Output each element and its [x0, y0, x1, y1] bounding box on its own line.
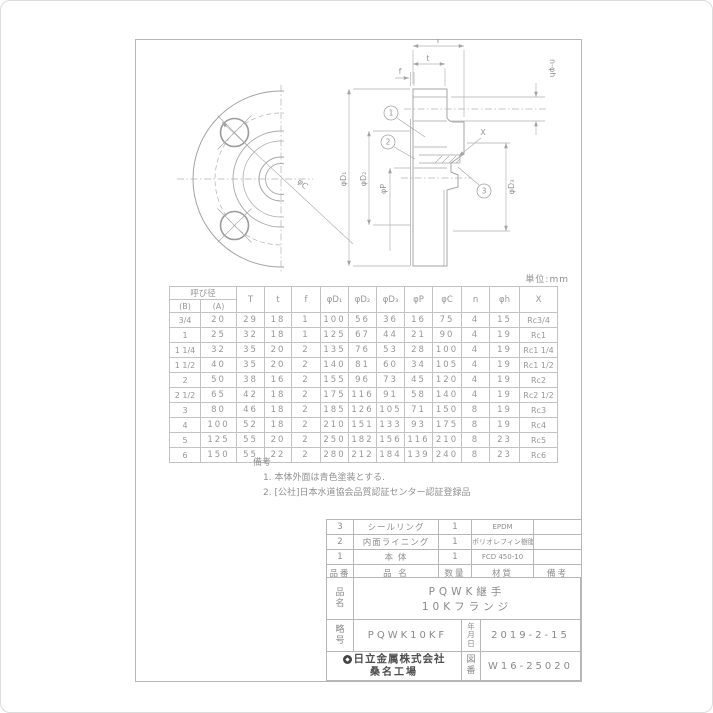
table-cell: 19 — [490, 373, 520, 388]
table-cell: 23 — [490, 433, 520, 448]
table-row: 25038162155967345120419Rc2 — [170, 373, 558, 388]
table-cell: 16 — [265, 373, 292, 388]
product-name-label-cell: 品名 — [326, 577, 354, 620]
table-cell: 3/4 — [170, 313, 201, 328]
company-cell: 日立金属株式会社 桑名工場 — [326, 651, 462, 681]
table-header-row: 呼び径 T t f φD₁ φD₂ φD₃ φP φC n φh X — [170, 287, 558, 300]
notes: 備考 1. 本体外面は青色塗装とする. 2. [公社]日本水道協会品質認証センタ… — [253, 456, 470, 501]
dim-label-t: t — [426, 54, 429, 63]
date-value-cell: 2019-2-15 — [480, 619, 581, 652]
code-label-cell: 略号 — [326, 619, 354, 652]
table-cell: 18 — [265, 388, 292, 403]
table-cell: 19 — [490, 358, 520, 373]
table-cell: 1 1/4 — [170, 343, 201, 358]
table-cell: 105 — [377, 403, 405, 418]
table-row: 1 1/43235202135765328100419Rc1 1/4 — [170, 343, 558, 358]
projection-views: φC — [135, 39, 581, 286]
table-cell: 100 — [433, 343, 462, 358]
table-cell: 2 — [292, 358, 321, 373]
table-cell: Rc3 — [520, 403, 558, 418]
table-row: 1本 体1FCD 450-10 — [327, 550, 582, 565]
table-cell: Rc1 1/4 — [520, 343, 558, 358]
balloons: 1 2 3 — [381, 106, 491, 198]
table-cell: 1 — [327, 550, 354, 565]
table-cell: 1 — [439, 520, 472, 535]
table-cell: 2 — [292, 433, 321, 448]
table-cell: 4 — [462, 358, 490, 373]
table-cell: 32 — [237, 328, 265, 343]
table-cell: 8 — [462, 433, 490, 448]
table-cell: 1 — [170, 328, 201, 343]
table-cell: 91 — [377, 388, 405, 403]
dwgno-value-cell: W16-25020 — [480, 651, 581, 681]
column-header: φD₂ — [349, 287, 377, 313]
hitachi-metals-logo-icon — [343, 655, 352, 664]
table-cell: 18 — [265, 328, 292, 343]
dim-label-f: f — [399, 67, 402, 76]
table-cell: 105 — [433, 358, 462, 373]
drawing-date: 2019-2-15 — [491, 630, 570, 641]
table-cell: 1 — [439, 535, 472, 550]
table-cell: 90 — [433, 328, 462, 343]
code-label: 略号 — [334, 625, 346, 647]
table-row: 1 1/24035202140816034105419Rc1 1/2 — [170, 358, 558, 373]
dim-label-phiD3: φD₃ — [507, 180, 516, 195]
table-cell: 3 — [327, 520, 354, 535]
table-cell: ポリオレフィン樹脂 — [472, 535, 534, 550]
table-cell: 20 — [265, 343, 292, 358]
table-cell: 40 — [201, 358, 237, 373]
table-cell: 32 — [201, 343, 237, 358]
table-cell: 19 — [490, 328, 520, 343]
table-cell: 250 — [321, 433, 349, 448]
table-cell: 18 — [265, 418, 292, 433]
table-cell: 20 — [265, 358, 292, 373]
column-header: φD₁ — [321, 287, 349, 313]
table-cell: 1 1/2 — [170, 358, 201, 373]
table-cell: 50 — [201, 373, 237, 388]
table-row: 2 1/265421821751169158140419Rc2 1/2 — [170, 388, 558, 403]
table-cell: 52 — [237, 418, 265, 433]
socket-seal-detail — [414, 147, 460, 168]
column-header: n — [462, 287, 490, 313]
table-cell: Rc5 — [520, 433, 558, 448]
table-cell: 4 — [462, 343, 490, 358]
table-cell: 151 — [349, 418, 377, 433]
table-cell: 155 — [321, 373, 349, 388]
table-cell: Rc1 — [520, 328, 558, 343]
dim-label-phiP: φP — [379, 184, 388, 194]
table-cell: 116 — [349, 388, 377, 403]
table-cell: 210 — [433, 433, 462, 448]
note-item: 2. [公社]日本水道協会品質認証センター認証登録品 — [263, 486, 470, 501]
dim-label-X: X — [480, 128, 486, 137]
table-cell — [534, 520, 582, 535]
dim-label-phiD2: φD₂ — [359, 172, 368, 187]
product-name-line1: PQWK継手 — [429, 584, 506, 599]
table-cell: Rc4 — [520, 418, 558, 433]
product-name-line2: 10Kフランジ — [422, 599, 512, 614]
column-header: φh — [490, 287, 520, 313]
table-row: 2内面ライニング1ポリオレフィン樹脂 — [327, 535, 582, 550]
table-cell: 156 — [377, 433, 405, 448]
table-cell: 18 — [265, 313, 292, 328]
notes-title: 備考 — [253, 456, 470, 471]
table-cell: 2 — [170, 373, 201, 388]
table-cell: 4 — [462, 388, 490, 403]
dim-label-phiC: φC — [296, 177, 310, 191]
table-cell: Rc2 1/2 — [520, 388, 558, 403]
table-cell: 6 — [170, 448, 201, 463]
table-cell: 125 — [201, 433, 237, 448]
table-cell: Rc3/4 — [520, 313, 558, 328]
table-cell: 38 — [237, 373, 265, 388]
table-cell: 140 — [321, 358, 349, 373]
table-cell: 28 — [405, 343, 433, 358]
table-cell: 93 — [405, 418, 433, 433]
column-header: φP — [405, 287, 433, 313]
table-cell: 53 — [377, 343, 405, 358]
table-cell: 71 — [405, 403, 433, 418]
table-cell: 4 — [462, 373, 490, 388]
table-cell: EPDM — [472, 520, 534, 535]
table-cell: 125 — [321, 328, 349, 343]
section-labels: T t f n-φh φD₁ φD₂ φP φD₃ X — [339, 39, 557, 194]
table-cell: 73 — [377, 373, 405, 388]
table-cell: 2 — [292, 418, 321, 433]
table-cell: 本 体 — [354, 550, 439, 565]
dwgno-label-cell: 図番 — [461, 651, 481, 681]
table-cell: 20 — [265, 433, 292, 448]
table-cell: 55 — [237, 433, 265, 448]
note-item: 1. 本体外面は青色塗装とする. — [263, 471, 470, 486]
table-cell: 4 — [170, 418, 201, 433]
dim-label-T: T — [435, 39, 441, 45]
table-cell: 29 — [237, 313, 265, 328]
table-cell: 60 — [377, 358, 405, 373]
column-header: T — [237, 287, 265, 313]
table-cell: 1 — [439, 550, 472, 565]
table-cell: 19 — [490, 403, 520, 418]
table-cell: 44 — [377, 328, 405, 343]
table-cell: 67 — [349, 328, 377, 343]
table-cell: 25 — [201, 328, 237, 343]
table-cell: 100 — [201, 418, 237, 433]
table-cell: 175 — [321, 388, 349, 403]
table-cell: 46 — [237, 403, 265, 418]
dim-label-phiD1: φD₁ — [339, 172, 348, 187]
table-cell: FCD 450-10 — [472, 550, 534, 565]
dim-label-n-phih: n-φh — [548, 59, 557, 77]
table-cell: 182 — [349, 433, 377, 448]
table-cell: 19 — [490, 418, 520, 433]
table-cell: 2 — [292, 373, 321, 388]
table-cell: 1 — [292, 328, 321, 343]
table-cell: 150 — [201, 448, 237, 463]
column-header: (A) — [201, 300, 237, 313]
column-header: φC — [433, 287, 462, 313]
table-cell: 96 — [349, 373, 377, 388]
dim-phiC — [222, 122, 353, 244]
column-header: (B) — [170, 300, 201, 313]
table-cell: 36 — [377, 313, 405, 328]
product-name-cell: PQWK継手 10Kフランジ — [353, 577, 581, 620]
table-cell: 19 — [490, 388, 520, 403]
table-cell: 5 — [170, 433, 201, 448]
table-cell: 150 — [433, 403, 462, 418]
table-cell: 35 — [237, 358, 265, 373]
column-header: 呼び径 — [170, 287, 237, 300]
table-cell: 2 1/2 — [170, 388, 201, 403]
section-view — [401, 89, 546, 266]
table-row: 3シールリング1EPDM — [327, 520, 582, 535]
table-cell: 65 — [201, 388, 237, 403]
table-cell: 42 — [237, 388, 265, 403]
table-cell: 120 — [433, 373, 462, 388]
table-cell: 8 — [462, 418, 490, 433]
table-cell: 140 — [433, 388, 462, 403]
column-header: t — [265, 287, 292, 313]
table-cell: 2 — [292, 403, 321, 418]
dimension-table: 呼び径 T t f φD₁ φD₂ φD₃ φP φC n φh X (B) (… — [169, 286, 558, 463]
table-cell: Rc6 — [520, 448, 558, 463]
drawing-number: W16-25020 — [488, 661, 573, 672]
table-row: 1253218112567442190419Rc1 — [170, 328, 558, 343]
table-cell: 135 — [321, 343, 349, 358]
title-block: 3シールリング1EPDM2内面ライニング1ポリオレフィン樹脂1本 体1FCD 4… — [326, 519, 581, 681]
table-cell: 45 — [405, 373, 433, 388]
table-cell: 15 — [490, 313, 520, 328]
table-cell: 1 — [292, 313, 321, 328]
table-cell: 58 — [405, 388, 433, 403]
table-cell: 35 — [237, 343, 265, 358]
table-cell: 81 — [349, 358, 377, 373]
table-cell: 21 — [405, 328, 433, 343]
unit-label: 単位:mm — [469, 272, 569, 285]
table-cell: 133 — [377, 418, 405, 433]
table-cell: 16 — [405, 313, 433, 328]
table-cell: 76 — [349, 343, 377, 358]
table-cell: 126 — [349, 403, 377, 418]
table-cell: 80 — [201, 403, 237, 418]
dwgno-label: 図番 — [465, 655, 477, 677]
code-value-cell: PQWK10KF — [353, 619, 462, 652]
table-cell: Rc2 — [520, 373, 558, 388]
table-cell — [534, 535, 582, 550]
balloon-number: 3 — [482, 187, 487, 196]
table-cell — [534, 550, 582, 565]
balloon-number: 2 — [386, 138, 391, 147]
table-cell: 23 — [490, 448, 520, 463]
column-header: φD₃ — [377, 287, 405, 313]
table-cell: 185 — [321, 403, 349, 418]
date-label-cell: 年月日 — [461, 619, 481, 652]
table-cell: 18 — [265, 403, 292, 418]
table-row: 512555202250182156116210823Rc5 — [170, 433, 558, 448]
product-name-label: 品名 — [334, 588, 346, 610]
company-name: 日立金属株式会社 — [354, 653, 446, 666]
table-row: 41005218221015113393175819Rc4 — [170, 418, 558, 433]
x-leader — [459, 138, 481, 156]
balloon-number: 1 — [389, 109, 394, 118]
column-header: f — [292, 287, 321, 313]
table-cell: 19 — [490, 343, 520, 358]
table-cell: Rc1 1/2 — [520, 358, 558, 373]
table-cell: 3 — [170, 403, 201, 418]
table-cell: 8 — [462, 403, 490, 418]
table-cell: 116 — [405, 433, 433, 448]
table-row: 3/4202918110056361675415Rc3/4 — [170, 313, 558, 328]
table-cell: 4 — [462, 313, 490, 328]
table-cell: 2 — [292, 343, 321, 358]
body-outline — [413, 89, 464, 266]
table-cell: 4 — [462, 328, 490, 343]
table-cell: 内面ライニング — [354, 535, 439, 550]
table-cell: 2 — [292, 388, 321, 403]
drawing-sheet: φC — [0, 0, 713, 713]
table-cell: 75 — [433, 313, 462, 328]
table-cell: 175 — [433, 418, 462, 433]
table-cell: 210 — [321, 418, 349, 433]
table-cell: 100 — [321, 313, 349, 328]
parts-table: 3シールリング1EPDM2内面ライニング1ポリオレフィン樹脂1本 体1FCD 4… — [326, 519, 582, 582]
table-cell: 20 — [201, 313, 237, 328]
table-cell: シールリング — [354, 520, 439, 535]
date-label: 年月日 — [465, 623, 477, 649]
table-cell: 2 — [327, 535, 354, 550]
product-code: PQWK10KF — [368, 630, 447, 641]
column-header: X — [520, 287, 558, 313]
factory-name: 桑名工場 — [370, 666, 418, 679]
table-cell: 34 — [405, 358, 433, 373]
table-row: 3804618218512610571150819Rc3 — [170, 403, 558, 418]
table-cell: 56 — [349, 313, 377, 328]
